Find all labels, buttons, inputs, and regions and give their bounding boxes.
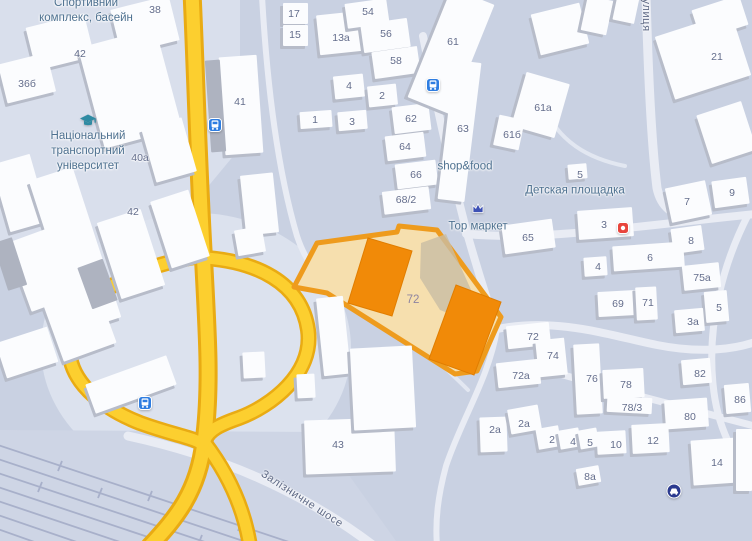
parcel-area-number: 72 (407, 294, 420, 306)
map-base-graphics (0, 0, 752, 541)
map-canvas[interactable]: 384236б40a4241171513a5456586142136264666… (0, 0, 752, 541)
